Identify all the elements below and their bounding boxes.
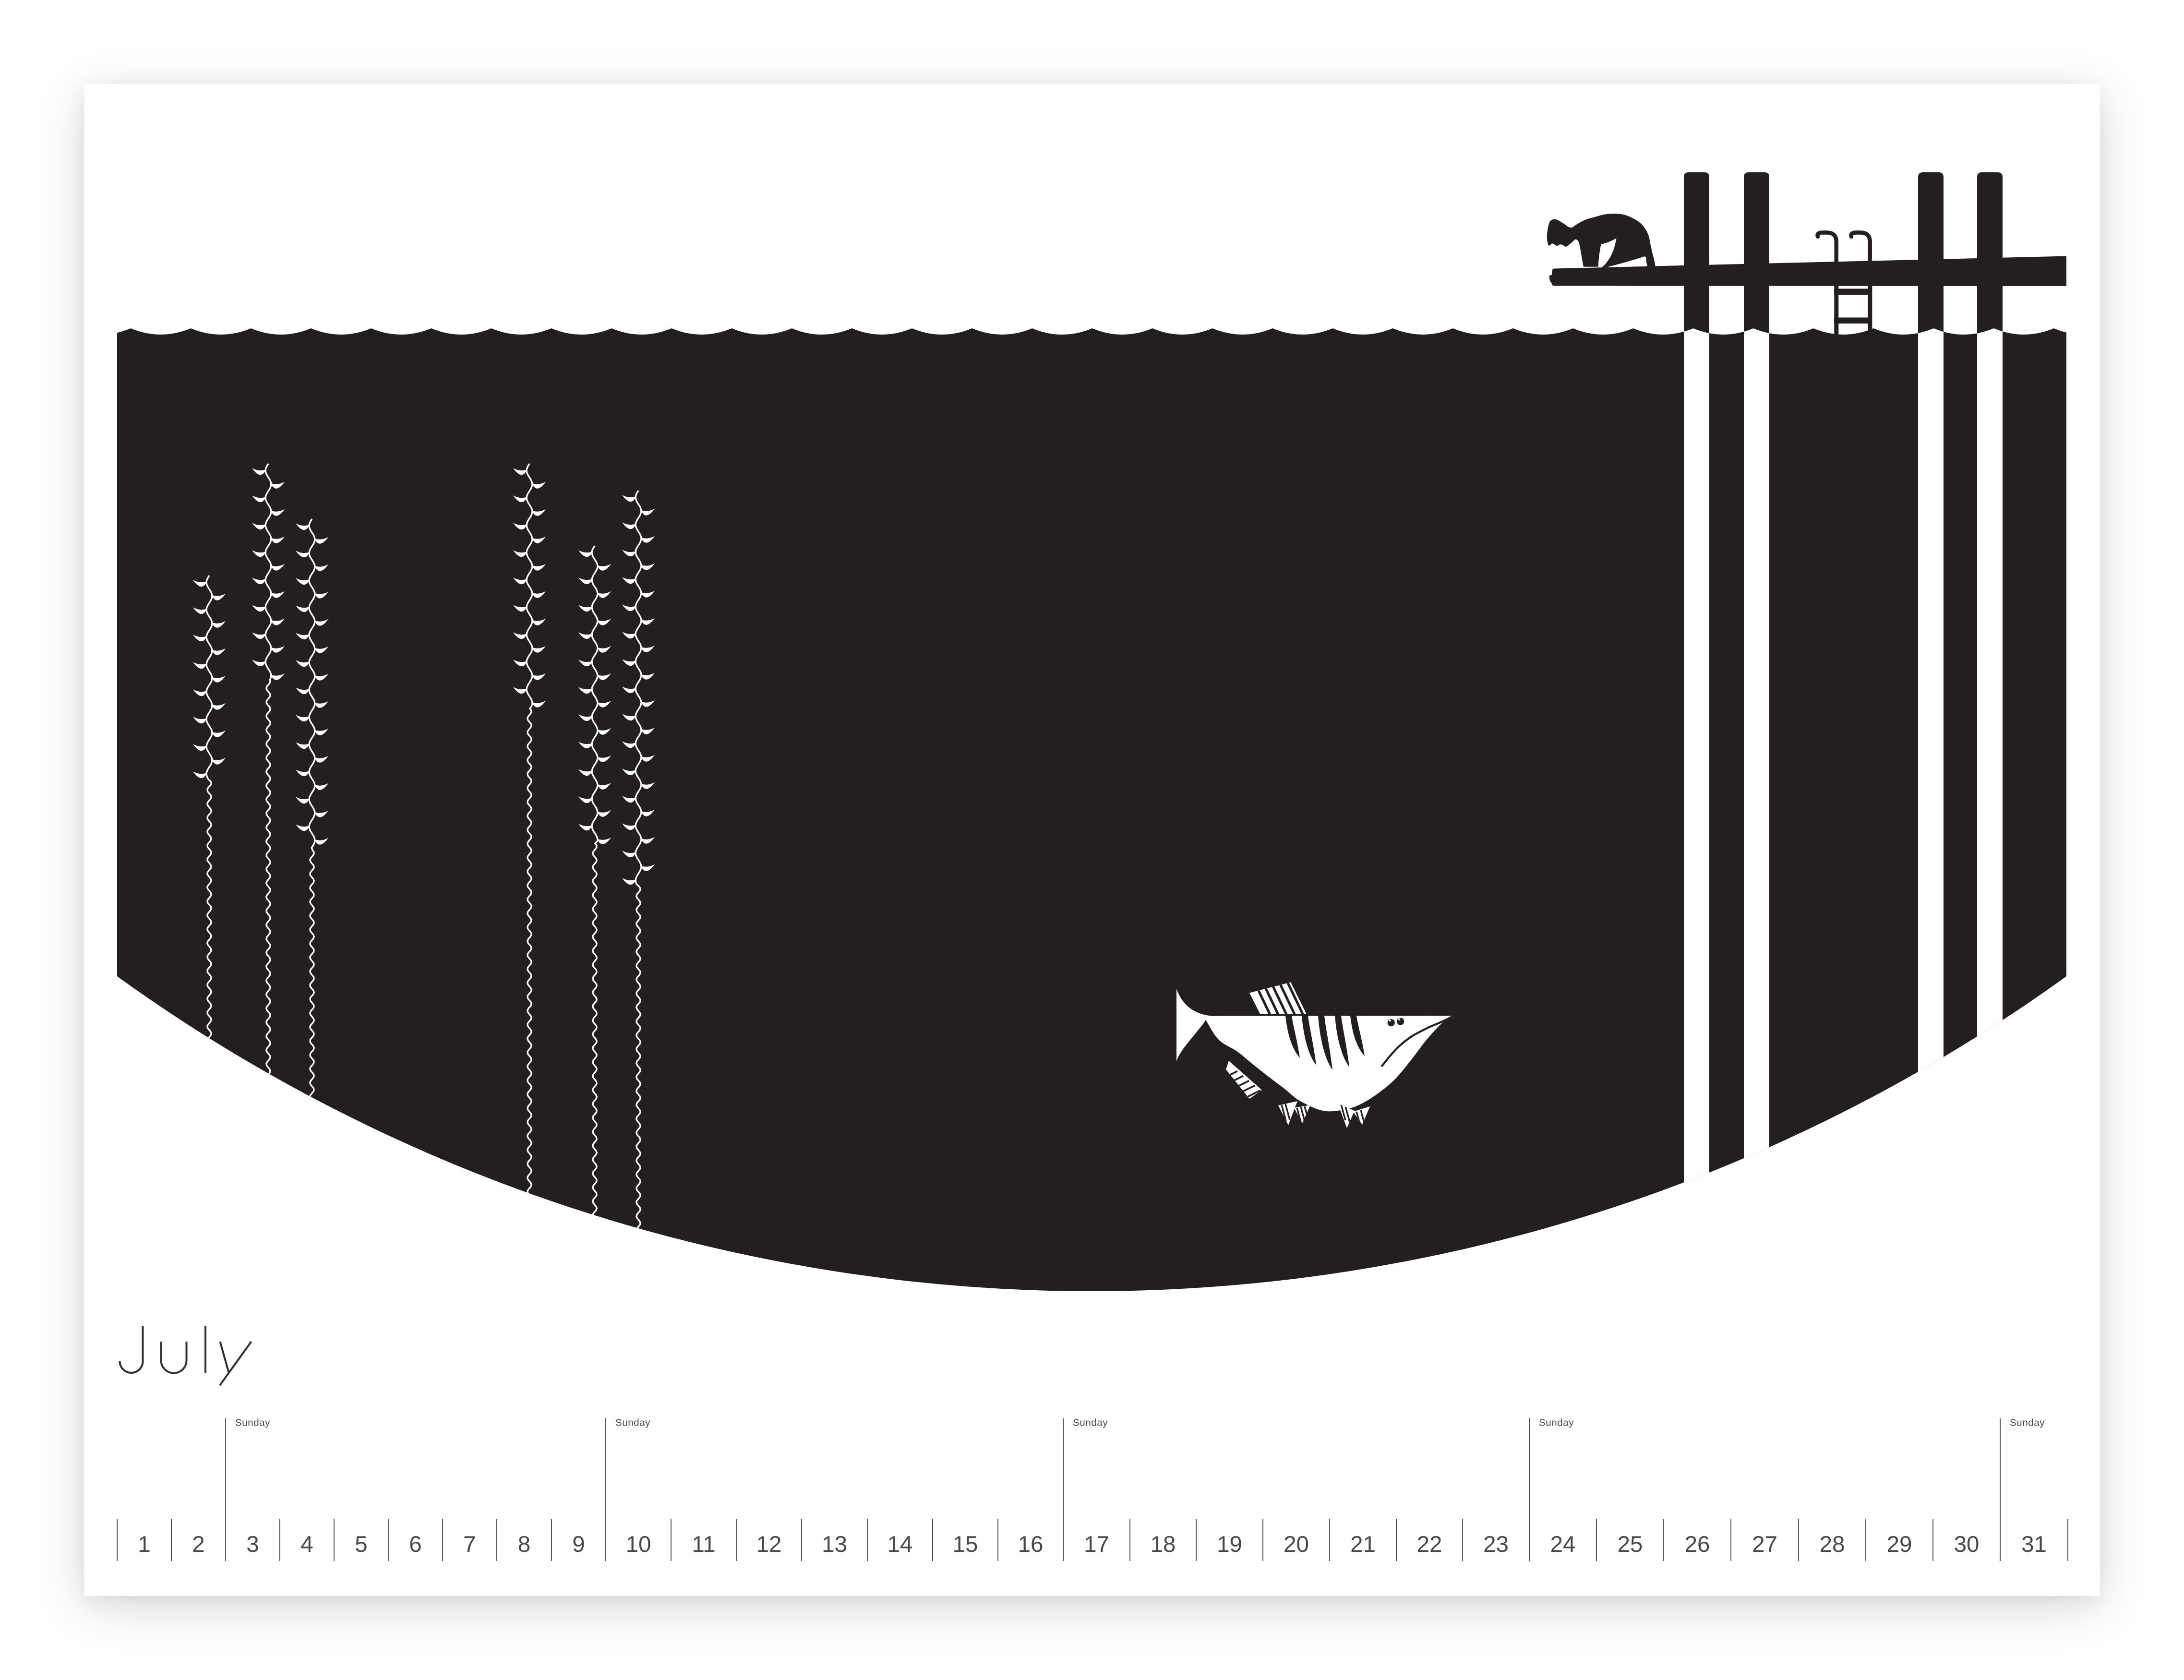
svg-text:23: 23 bbox=[1483, 1532, 1509, 1557]
svg-text:Sunday: Sunday bbox=[235, 1417, 270, 1428]
svg-text:12: 12 bbox=[756, 1532, 782, 1557]
svg-text:18: 18 bbox=[1151, 1532, 1176, 1557]
svg-text:11: 11 bbox=[692, 1532, 715, 1557]
svg-text:29: 29 bbox=[1887, 1532, 1912, 1557]
svg-text:9: 9 bbox=[572, 1532, 585, 1557]
svg-text:30: 30 bbox=[1954, 1532, 1980, 1557]
svg-text:21: 21 bbox=[1350, 1532, 1376, 1557]
svg-text:22: 22 bbox=[1417, 1532, 1442, 1557]
svg-text:27: 27 bbox=[1752, 1532, 1777, 1557]
svg-text:3: 3 bbox=[246, 1532, 259, 1557]
svg-text:Sunday: Sunday bbox=[2010, 1417, 2045, 1428]
svg-text:2: 2 bbox=[192, 1532, 204, 1557]
svg-text:Sunday: Sunday bbox=[1539, 1417, 1574, 1428]
svg-text:16: 16 bbox=[1018, 1532, 1044, 1557]
svg-text:13: 13 bbox=[822, 1532, 847, 1557]
svg-text:25: 25 bbox=[1618, 1532, 1643, 1557]
svg-text:31: 31 bbox=[2021, 1532, 2047, 1557]
svg-text:7: 7 bbox=[463, 1532, 476, 1557]
svg-text:1: 1 bbox=[138, 1532, 150, 1557]
svg-text:17: 17 bbox=[1084, 1532, 1109, 1557]
svg-text:4: 4 bbox=[300, 1532, 313, 1557]
svg-text:Sunday: Sunday bbox=[1073, 1417, 1108, 1428]
svg-text:14: 14 bbox=[888, 1532, 913, 1557]
svg-text:10: 10 bbox=[626, 1532, 651, 1557]
svg-text:19: 19 bbox=[1217, 1532, 1242, 1557]
svg-text:8: 8 bbox=[518, 1532, 530, 1557]
svg-text:20: 20 bbox=[1284, 1532, 1309, 1557]
svg-text:24: 24 bbox=[1550, 1532, 1576, 1557]
svg-text:26: 26 bbox=[1685, 1532, 1710, 1557]
svg-text:6: 6 bbox=[409, 1532, 421, 1557]
svg-text:5: 5 bbox=[355, 1532, 367, 1557]
svg-text:28: 28 bbox=[1820, 1532, 1845, 1557]
svg-text:15: 15 bbox=[953, 1532, 978, 1557]
svg-text:Sunday: Sunday bbox=[615, 1417, 650, 1428]
